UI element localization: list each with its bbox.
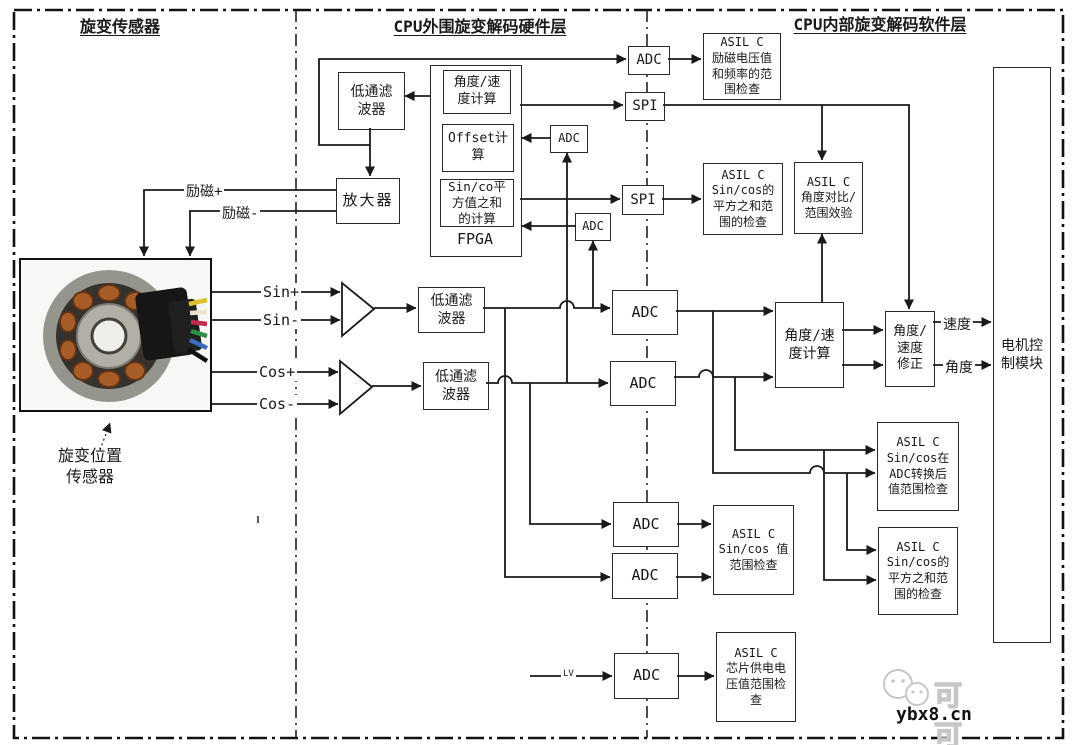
label-speed: 速度 [941, 314, 973, 334]
box-fpga-angle-speed-calc: 角度/速 度计算 [443, 70, 511, 114]
box-adc-sin-check: ADC [613, 502, 679, 547]
box-asil-excitation-check: ASIL C 励磁电压值 和频率的范 围检查 [703, 33, 781, 100]
box-adc-cos: ADC [610, 361, 676, 406]
label-sin-plus: Sin+ [261, 283, 301, 301]
box-asil-angle-compare: ASIL C 角度对比/ 范围效验 [794, 162, 863, 234]
label-excitation-plus: 励磁+ [184, 181, 224, 201]
box-adc-cos-check: ADC [612, 553, 678, 599]
section-title-hardware: CPU外围旋变解码硬件层 [380, 13, 580, 37]
resolver-photo [19, 258, 212, 412]
box-fpga-offset-calc: Offset计 算 [442, 124, 514, 172]
box-spi-angle: SPI [625, 92, 665, 121]
box-adc-sin: ADC [612, 290, 678, 335]
box-motor-control-module: 电机控 制模块 [993, 67, 1051, 643]
fpga-label: FPGA [430, 228, 520, 252]
box-adc-fpga-sum: ADC [575, 213, 611, 241]
label-lv: LV [561, 669, 576, 679]
box-asil-sincos-square-sw-check: ASIL C Sin/cos的 平方之和范 围的检查 [878, 527, 958, 615]
label-sin-minus: Sin- [261, 311, 301, 329]
resolver-decoding-diagram: 旋变传感器 CPU外围旋变解码硬件层 CPU内部旋变解码软件层 [0, 0, 1080, 745]
label-angle: 角度 [943, 357, 975, 377]
box-spi-sincos: SPI [622, 185, 664, 215]
label-cos-plus: Cos+ [257, 363, 297, 381]
watermark-site: ybx8.cn [896, 704, 972, 725]
box-asil-adc-converted-check: ASIL C Sin/cos在 ADC转换后 值范围检查 [877, 422, 959, 511]
watermark: 可可电驱 ybx8.cn [876, 666, 934, 718]
box-asil-value-range-check: ASIL C Sin/cos 值 范围检查 [713, 505, 794, 595]
box-lpf-excitation: 低通滤 波器 [338, 72, 405, 130]
box-angle-speed-correction: 角度/ 速度 修正 [885, 311, 935, 387]
label-cos-minus: Cos- [257, 395, 297, 413]
box-adc-supply: ADC [614, 653, 679, 699]
box-fpga-sincos-sum-calc: Sin/co平 方值之和 的计算 [440, 179, 514, 227]
label-excitation-minus: 励磁- [220, 203, 260, 223]
box-amplifier: 放大器 [336, 178, 400, 224]
box-asil-sincos-square-spi-check: ASIL C Sin/cos的 平方之和范 围的检查 [703, 163, 783, 235]
box-angle-speed-calc: 角度/速 度计算 [775, 302, 844, 388]
box-adc-excitation: ADC [628, 46, 670, 75]
box-adc-offset: ADC [550, 125, 588, 153]
resolver-position-sensor-label: 旋变位置 传感器 [30, 441, 150, 493]
resolver-photo-drawing [21, 260, 209, 409]
box-lpf-cos: 低通滤 波器 [423, 362, 489, 410]
box-asil-chip-supply-check: ASIL C 芯片供电电 压值范围检 查 [716, 632, 796, 722]
box-lpf-sin: 低通滤 波器 [418, 287, 485, 333]
section-title-sensor: 旋变传感器 [40, 13, 200, 37]
section-title-software: CPU内部旋变解码软件层 [780, 11, 980, 35]
